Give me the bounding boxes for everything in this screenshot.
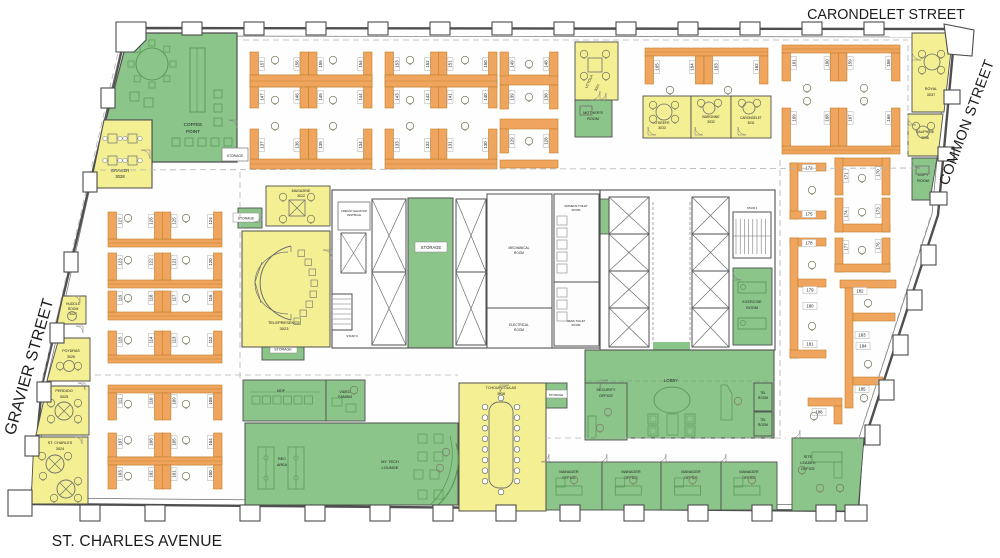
svg-text:STORAGE: STORAGE [227, 154, 244, 158]
svg-text:163: 163 [713, 63, 718, 71]
svg-text:180: 180 [806, 304, 814, 309]
svg-text:TEL: TEL [760, 391, 766, 395]
svg-text:147: 147 [259, 93, 264, 101]
svg-text:112: 112 [208, 336, 213, 343]
svg-text:114: 114 [149, 336, 154, 343]
svg-text:139: 139 [510, 93, 515, 101]
svg-text:153: 153 [394, 60, 399, 68]
svg-text:134: 134 [358, 141, 363, 149]
svg-text:MANAGER: MANAGER [559, 470, 578, 474]
svg-text:161: 161 [791, 59, 796, 67]
svg-text:ST. CHARLES AVENUE: ST. CHARLES AVENUE [52, 533, 223, 550]
svg-text:127: 127 [117, 217, 122, 225]
svg-text:110: 110 [149, 397, 154, 404]
svg-text:133: 133 [394, 141, 399, 149]
svg-text:168: 168 [824, 114, 829, 122]
svg-text:ROOM: ROOM [572, 323, 581, 327]
svg-text:105: 105 [172, 438, 177, 446]
svg-text:140: 140 [483, 93, 488, 101]
svg-text:146: 146 [294, 93, 299, 101]
svg-text:SECURITY: SECURITY [596, 388, 616, 392]
svg-text:CARONDELET STREET: CARONDELET STREET [807, 7, 965, 23]
svg-text:OFFICE: OFFICE [599, 394, 613, 398]
svg-text:ROOM: ROOM [758, 396, 768, 400]
svg-text:STORAGE: STORAGE [549, 393, 564, 397]
svg-text:167: 167 [848, 114, 853, 122]
svg-text:149: 149 [510, 60, 515, 68]
svg-text:101: 101 [172, 470, 177, 478]
svg-text:107: 107 [117, 438, 122, 446]
svg-text:3032: 3032 [707, 120, 715, 124]
svg-text:OFFICE: OFFICE [801, 467, 815, 471]
svg-text:3033: 3033 [658, 126, 666, 130]
svg-text:179: 179 [806, 288, 814, 293]
svg-text:3024: 3024 [56, 447, 64, 451]
svg-text:ST. CHARLES: ST. CHARLES [48, 441, 73, 445]
svg-text:174: 174 [844, 210, 849, 218]
svg-text:126: 126 [149, 217, 154, 225]
svg-text:176: 176 [876, 242, 881, 250]
svg-text:103: 103 [117, 470, 122, 478]
svg-text:113: 113 [172, 336, 177, 343]
svg-text:122: 122 [149, 258, 154, 266]
svg-text:111: 111 [117, 397, 122, 404]
svg-text:3026: 3026 [67, 355, 75, 359]
svg-text:GAMING: GAMING [338, 395, 353, 399]
svg-text:SITE: SITE [804, 455, 813, 459]
svg-text:165: 165 [654, 63, 659, 71]
svg-text:188: 188 [815, 410, 823, 415]
svg-text:169: 169 [791, 114, 796, 122]
svg-text:175: 175 [805, 212, 813, 217]
svg-text:119: 119 [117, 294, 122, 301]
svg-text:155: 155 [318, 60, 323, 68]
svg-text:160: 160 [824, 59, 829, 67]
svg-text:HUDDLE: HUDDLE [66, 302, 81, 306]
svg-text:TEL: TEL [760, 418, 766, 422]
svg-text:128: 128 [544, 137, 549, 145]
svg-text:171: 171 [844, 172, 849, 180]
svg-text:117: 117 [172, 294, 177, 301]
svg-text:3037: 3037 [927, 93, 935, 97]
svg-text:164: 164 [690, 63, 695, 71]
svg-text:STAIR 2: STAIR 2 [747, 206, 758, 210]
svg-text:162: 162 [754, 63, 759, 71]
svg-text:159: 159 [848, 59, 853, 67]
svg-text:GRAVIER: GRAVIER [111, 168, 130, 173]
svg-text:185: 185 [858, 387, 866, 392]
svg-text:150: 150 [483, 60, 488, 68]
svg-text:130: 130 [483, 141, 488, 149]
svg-text:170: 170 [876, 169, 881, 177]
svg-text:151: 151 [448, 60, 453, 68]
svg-text:154: 154 [358, 60, 363, 68]
svg-text:178: 178 [805, 241, 813, 246]
svg-text:137: 137 [259, 141, 264, 149]
svg-text:LOBBY: LOBBY [664, 378, 678, 383]
svg-text:AREA: AREA [277, 463, 288, 467]
svg-text:FREIGHT ELEVATOR: FREIGHT ELEVATOR [341, 209, 367, 213]
svg-text:142: 142 [425, 93, 430, 101]
svg-text:ROOM: ROOM [68, 307, 79, 311]
svg-text:VESTIBULE: VESTIBULE [347, 213, 362, 217]
svg-text:123: 123 [117, 258, 122, 266]
svg-text:ROOM: ROOM [917, 179, 929, 183]
svg-text:PERDIDO: PERDIDO [55, 389, 72, 393]
svg-text:129: 129 [510, 137, 515, 145]
svg-text:100: 100 [208, 470, 213, 478]
svg-text:145: 145 [318, 93, 323, 101]
svg-text:182: 182 [856, 289, 864, 294]
svg-text:177: 177 [844, 243, 849, 251]
svg-text:ROOM: ROOM [572, 208, 581, 212]
svg-text:LOUNGE: LOUNGE [382, 465, 399, 470]
svg-text:POINT: POINT [186, 129, 200, 134]
svg-text:3025: 3025 [60, 395, 68, 399]
svg-text:158: 158 [886, 59, 891, 67]
svg-text:ROYAL: ROYAL [925, 87, 938, 91]
svg-text:POYDRAS: POYDRAS [62, 349, 80, 353]
svg-text:157: 157 [259, 60, 264, 68]
svg-text:152: 152 [425, 60, 430, 68]
svg-text:DAUPHINE: DAUPHINE [916, 130, 935, 134]
svg-text:MANAGER: MANAGER [621, 470, 640, 474]
svg-text:COFFEE: COFFEE [184, 122, 203, 127]
svg-text:181: 181 [806, 342, 814, 347]
svg-text:116: 116 [208, 294, 213, 301]
svg-text:118: 118 [149, 294, 154, 301]
svg-text:125: 125 [172, 217, 177, 225]
svg-text:108: 108 [208, 397, 213, 405]
svg-text:104: 104 [208, 438, 213, 446]
svg-text:184: 184 [859, 344, 867, 349]
svg-text:STAIR N: STAIR N [346, 334, 358, 338]
svg-text:3022: 3022 [297, 194, 305, 198]
svg-text:102: 102 [149, 470, 154, 478]
svg-text:MECHANICAL: MECHANICAL [509, 246, 530, 250]
svg-text:EXERCISE: EXERCISE [742, 300, 762, 304]
svg-text:3023: 3023 [280, 326, 290, 331]
svg-text:STORAGE: STORAGE [274, 348, 292, 352]
svg-text:136: 136 [294, 141, 299, 149]
svg-text:ROOM: ROOM [587, 117, 599, 121]
svg-text:MDF: MDF [277, 389, 286, 393]
svg-text:ROOM: ROOM [746, 306, 758, 310]
svg-text:143: 143 [394, 93, 399, 101]
svg-text:144: 144 [358, 93, 363, 101]
svg-text:MY TECH: MY TECH [381, 459, 399, 464]
svg-text:132: 132 [425, 141, 430, 149]
svg-text:MANAGER: MANAGER [681, 470, 700, 474]
svg-text:3028: 3028 [115, 174, 125, 179]
svg-text:ELECTRICAL: ELECTRICAL [509, 323, 529, 327]
svg-text:135: 135 [318, 141, 323, 149]
svg-text:REC: REC [278, 457, 286, 461]
svg-text:106: 106 [149, 438, 154, 446]
svg-text:VIDEO: VIDEO [339, 390, 350, 394]
svg-text:138: 138 [544, 93, 549, 101]
svg-text:148: 148 [544, 60, 549, 68]
svg-text:MAGAZINE: MAGAZINE [292, 189, 311, 193]
svg-text:MANAGER: MANAGER [739, 470, 758, 474]
svg-text:3031: 3031 [747, 121, 754, 125]
svg-text:166: 166 [886, 114, 891, 122]
svg-text:O'KEEFE: O'KEEFE [654, 121, 670, 125]
svg-text:124: 124 [208, 217, 213, 225]
svg-text:109: 109 [172, 397, 177, 405]
svg-text:STORAGE: STORAGE [421, 245, 442, 250]
svg-text:ROOM: ROOM [514, 328, 524, 332]
svg-text:ROOM: ROOM [514, 251, 524, 255]
svg-text:131: 131 [448, 141, 453, 149]
svg-text:183: 183 [858, 333, 866, 338]
svg-text:CARONDELET: CARONDELET [740, 116, 762, 120]
svg-text:173: 173 [876, 207, 881, 215]
svg-text:156: 156 [294, 60, 299, 68]
svg-text:141: 141 [448, 93, 453, 101]
svg-text:MOTHER'S: MOTHER'S [583, 111, 603, 115]
svg-text:115: 115 [117, 336, 122, 343]
svg-text:120: 120 [208, 258, 213, 266]
svg-text:ROOM: ROOM [758, 423, 768, 427]
svg-text:BARONNE: BARONNE [702, 115, 720, 119]
svg-text:121: 121 [172, 258, 177, 266]
